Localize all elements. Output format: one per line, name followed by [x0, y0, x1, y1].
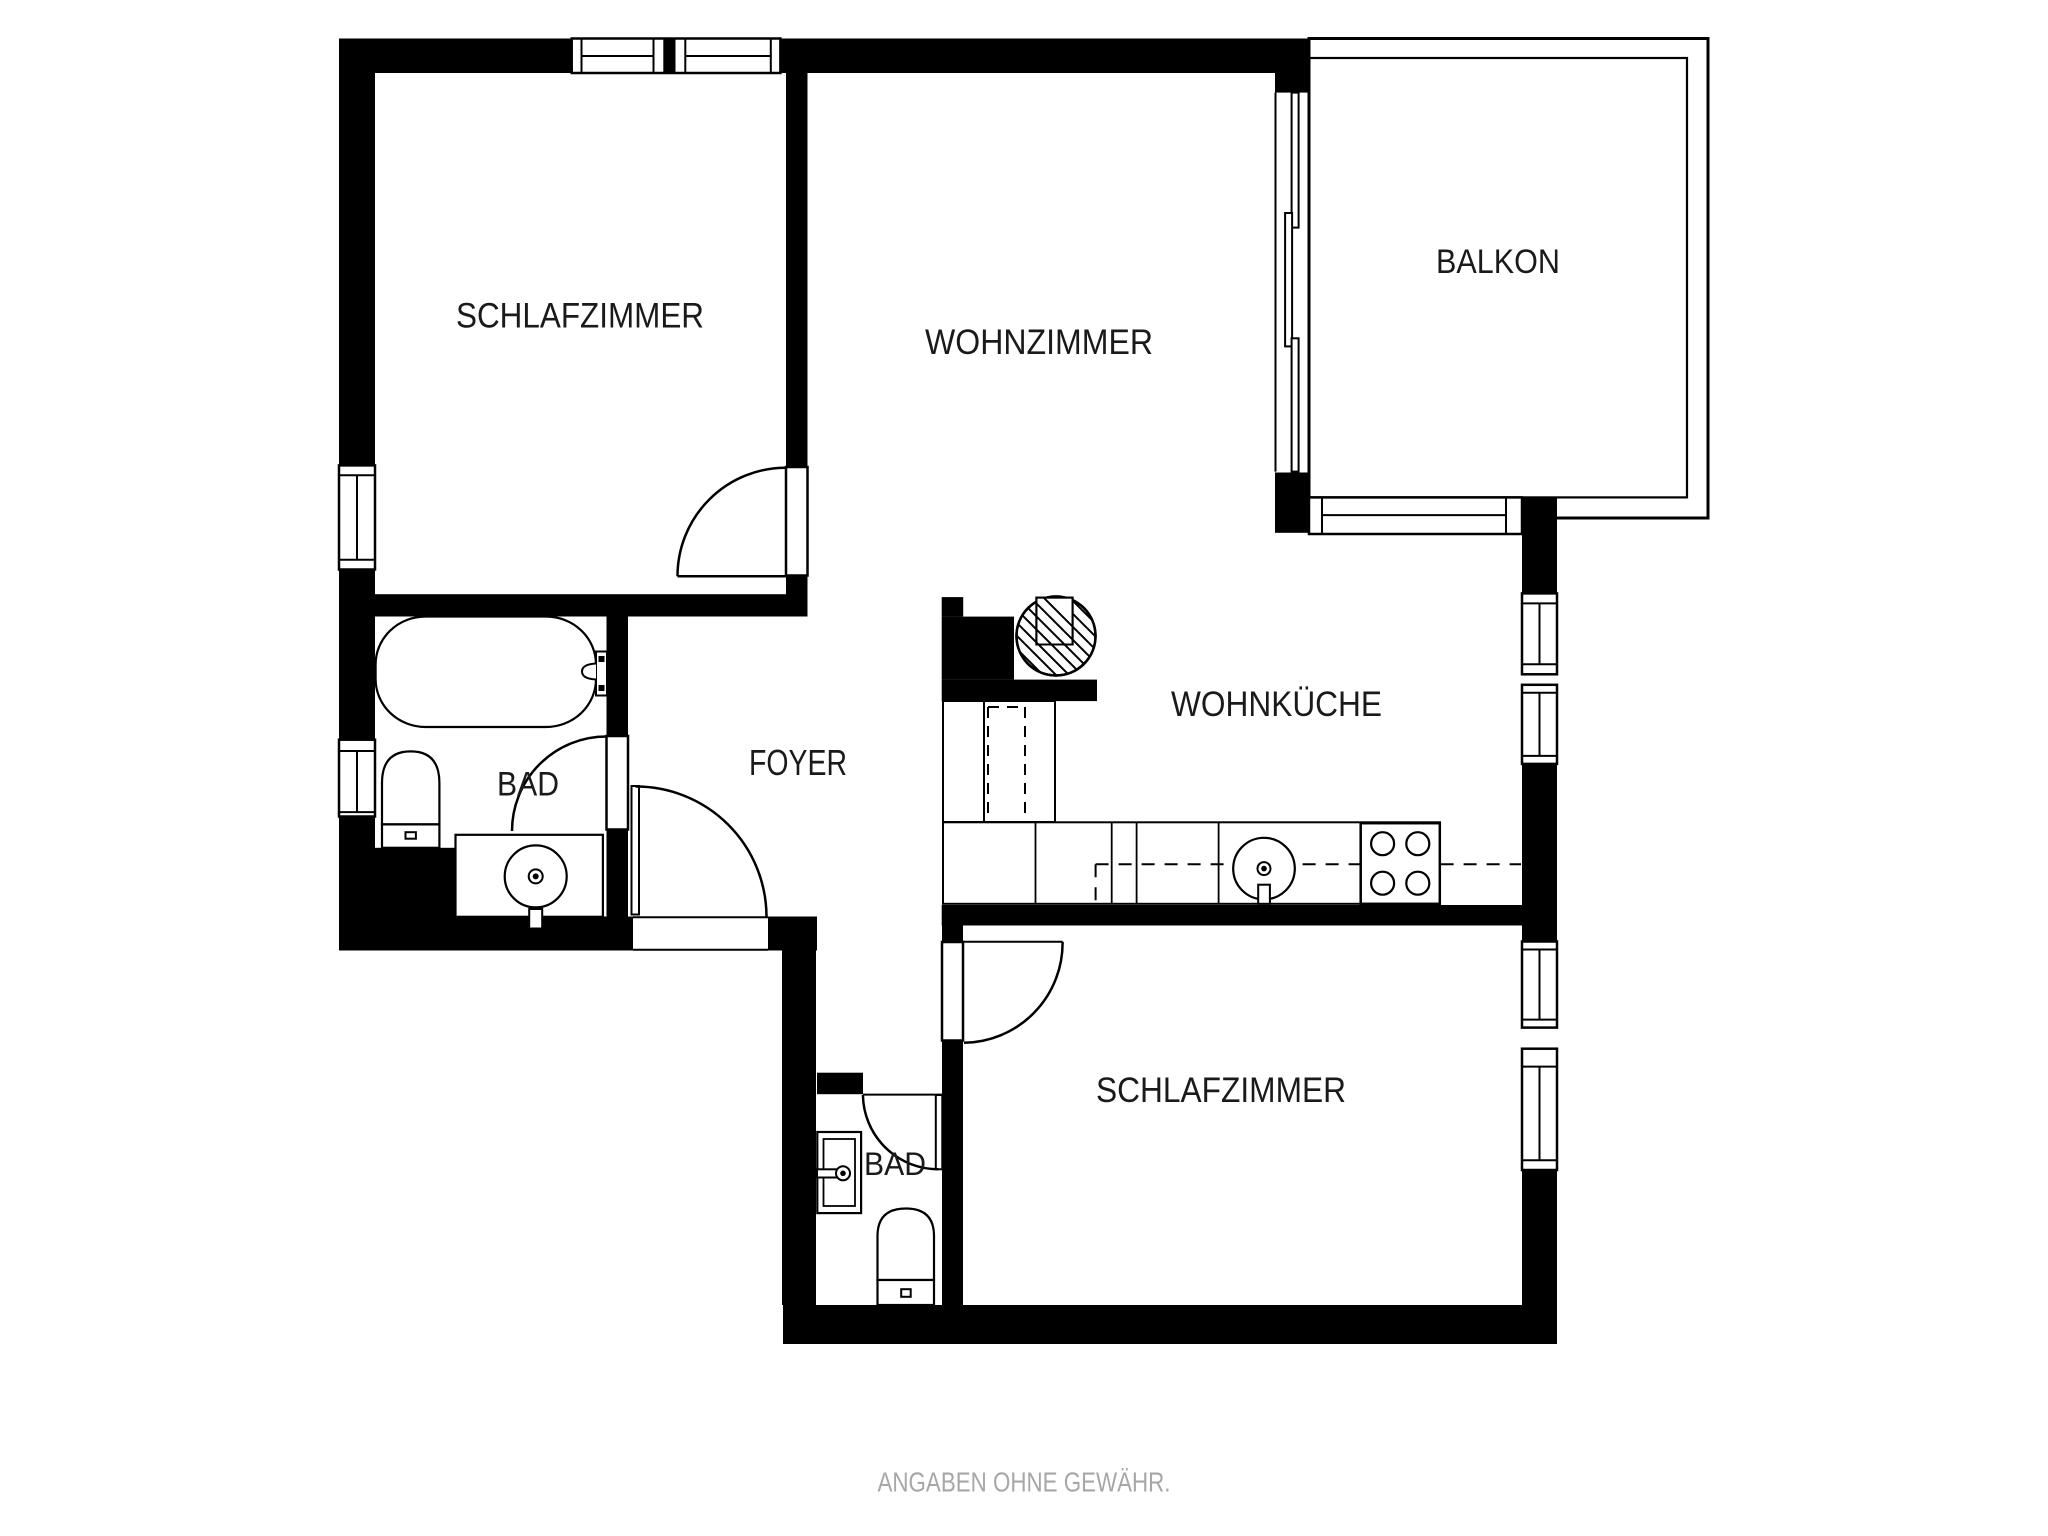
- svg-text:WOHNKÜCHE: WOHNKÜCHE: [1171, 685, 1382, 724]
- svg-text:SCHLAFZIMMER: SCHLAFZIMMER: [1096, 1071, 1346, 1110]
- svg-text:BALKON: BALKON: [1436, 243, 1560, 281]
- svg-text:FOYER: FOYER: [749, 742, 847, 783]
- svg-text:ANGABEN OHNE GEWÄHR.: ANGABEN OHNE GEWÄHR.: [878, 1467, 1171, 1498]
- svg-text:BAD: BAD: [497, 766, 559, 804]
- svg-text:WOHNZIMMER: WOHNZIMMER: [925, 323, 1153, 362]
- svg-text:SCHLAFZIMMER: SCHLAFZIMMER: [456, 297, 704, 336]
- svg-text:BAD: BAD: [864, 1146, 926, 1182]
